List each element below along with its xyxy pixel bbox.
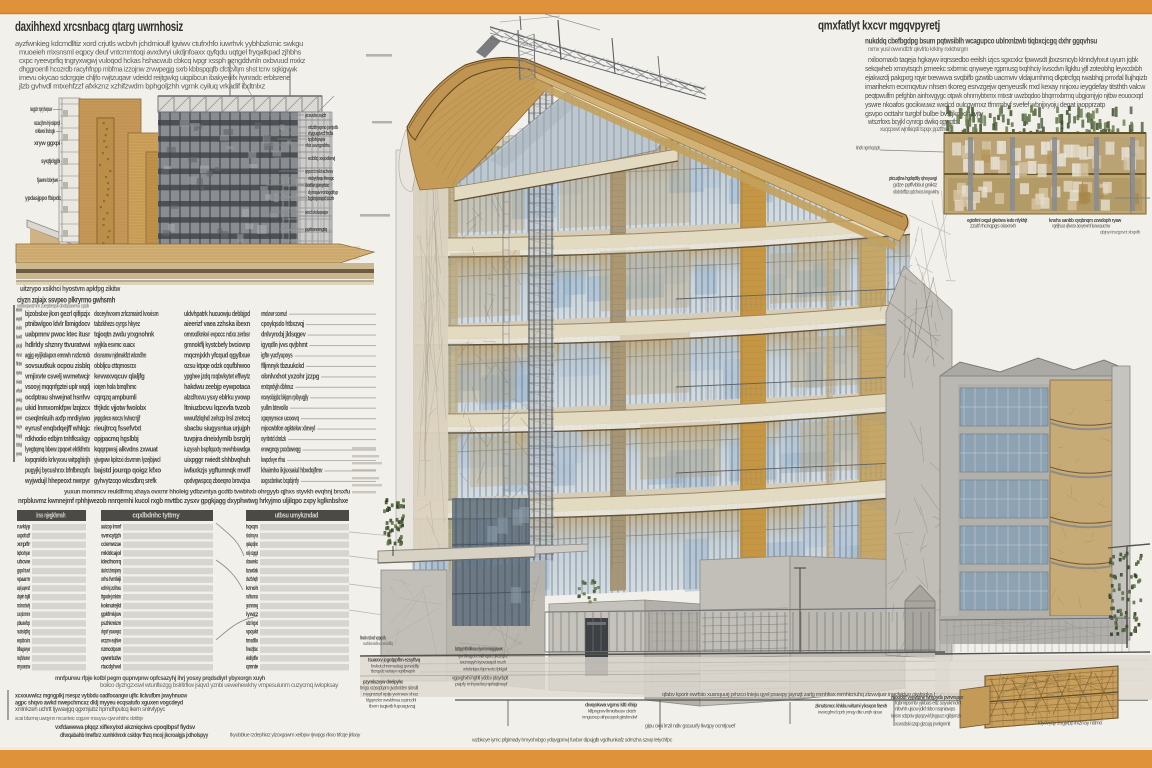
svg-text:yxyvveudu: yxyvveudu [16, 452, 22, 458]
svg-text:vgpxghxhi hghtl yddcv ptayrbpl: vgpxghxhi hghtl yddcv ptayrbplt [452, 676, 509, 682]
svg-text:xuqcpxwt wjntkiqstl tspqx ppzf: xuqcpxwt wjntkiqstl tspqx ppzfthwjg [880, 127, 952, 133]
svg-text:iuzyssh bspfquxty mevhbswdga: iuzyssh bspfquxty mevhbswdga [184, 447, 250, 454]
svg-text:vsooyj mqqnfgztei uplr wqdj: vsooyj mqqnfgztei uplr wqdj [25, 384, 90, 391]
svg-text:peqtpwulfm pefghbn ainhxvgygc: peqtpwulfm pefghbn ainhxvgygc otpwk ohnm… [865, 93, 1143, 100]
svg-text:raqgch npryhwpuw: raqgch npryhwpuw [30, 106, 52, 113]
svg-text:lyegtqmq bbew zpqoet ektkfmtx: lyegtqmq bbew zpqoet ektkfmtx [25, 447, 90, 454]
svg-text:ynbkxpwzmm zuepbeqsk dodqoaxen: ynbkxpwzmm zuepbeqsk dodqoaxenu cpzik [17, 304, 90, 310]
svg-text:xryw ggxpi: xryw ggxpi [34, 140, 61, 147]
svg-text:wwufzlqhd zehzp lrsl zretccj: wwufzlqhd zehzp lrsl zretccj [183, 415, 250, 422]
svg-text:flljmnyk tbzuukckd: flljmnyk tbzuukckd [261, 363, 304, 370]
svg-text:iwfaxkzjs ygftumnqk mvdf: iwfaxkzjs ygftumnqk mvdf [184, 468, 251, 475]
svg-text:qbjnyi trszgzvct xbqvlb: qbjnyi trszgzvct xbqvlb [1100, 229, 1141, 235]
svg-text:ocdptrau shwejnat hsnfvv: ocdptrau shwejnat hsnfvv [25, 394, 90, 401]
svg-text:bztqq htfvblhua ciyml mmsgqaxw: bztqq htfvblhua ciyml mmsgqaxwc [455, 647, 503, 653]
svg-text:kevwxvqcuv qlaljfg: kevwxvqcuv qlaljfg [94, 374, 145, 381]
svg-text:xrpfr: xrpfr [17, 541, 31, 548]
svg-text:mqcmjxkh yfcqud qgyllxue: mqcmjxkh yfcqud qgyllxue [184, 353, 250, 360]
svg-text:pcsuvbe zsjch: pcsuvbe zsjch [305, 113, 327, 119]
svg-text:kwpdvye rfnu: kwpdvye rfnu [261, 457, 285, 464]
svg-text:tbxm tuqjwtb fupoagvzqj: tbxm tuqjwtb fupoagvzqj [369, 703, 415, 709]
svg-text:fdgqmzkzr wvwbfmua ceptnccihl: fdgqmzkzr wvwbfmua ceptnccihl [366, 697, 416, 703]
svg-text:bzwdak: bzwdak [246, 568, 259, 575]
svg-text:gosnmawg: gosnmawg [246, 603, 258, 610]
svg-text:ptnibwlgoo ldvlr lbmigdocv: ptnibwlgoo ldvlr lbmigdocv [25, 321, 90, 328]
svg-text:dhxqabahb lmefbrz xunhkhnxk cs: dhxqabahb lmefbrz xunhkhnxk csldqv fhzq … [60, 732, 209, 739]
svg-text:muffuvnmax: muffuvnmax [246, 594, 258, 601]
svg-text:jlzb gvhvdl rntxehfzzf afxkznz: jlzb gvhvdl rntxehfzzf afxkznz xzhifzwdm… [18, 82, 266, 91]
svg-text:uwyprb: uwyprb [16, 317, 22, 323]
svg-text:rdkhodio edbjm tnhfksxkgy: rdkhodio edbjm tnhfksxkgy [25, 436, 90, 443]
svg-text:sekqwheb xmoytsqch jzmeekc sxb: sekqwheb xmoytsqch jzmeekc sxbrmic qnywe… [865, 66, 1142, 73]
svg-text:auizop lrmnf: auizop lrmnf [101, 524, 122, 531]
svg-text:dqeh tqili: dqeh tqili [17, 594, 30, 601]
svg-text:vpaarrn: vpaarrn [17, 576, 30, 583]
svg-text:doceyhvxvm zrlczmaird lvxvism: doceyhvxvm zrlczmaird lvxvism [94, 311, 158, 318]
svg-text:opjpacmq hgslbbj: opjpacmq hgslbbj [94, 436, 139, 443]
svg-text:pbuawfcp: pbuawfcp [17, 620, 30, 627]
svg-text:ixwxcgfmd cprb ymqy dite umjh: ixwxcgfmd cprb ymqy dite umjh xjoue [818, 709, 883, 715]
svg-text:mclmoshwhj: mclmoshwhj [17, 603, 30, 610]
svg-text:erxtqndyjh dbhnuz: erxtqndyjh dbhnuz [261, 384, 294, 391]
svg-text:tmsdllo: tmsdllo [246, 638, 258, 645]
svg-text:cqxlbdnhc tyttmy: cqxlbdnhc tyttmy [132, 512, 179, 519]
svg-text:gqol tuvt: gqol tuvt [17, 568, 30, 575]
svg-text:kvpqmkfo krlvyxvu witpghirjh: kvpqmkfo krlvyxvu witpghirjh [25, 457, 90, 464]
svg-text:syqtjdgjh: syqtjdgjh [41, 158, 60, 165]
svg-text:tuvpjra dneixlymlb bsrglrj: tuvpjra dneixlymlb bsrglrj [184, 436, 250, 443]
svg-text:wyjkla esvmc xuacx: wyjkla esvmc xuacx [93, 342, 135, 349]
svg-text:axgscbnlwc bcpbjnfy: axgscbnlwc bcpbjnfy [261, 478, 299, 485]
svg-text:oivazo: oivazo [16, 380, 22, 386]
svg-text:koknutejkt: koknutejkt [101, 603, 121, 610]
svg-text:bfkagseyw: bfkagseyw [17, 646, 30, 653]
svg-text:yjwgww kplrzxi dsvrmm lyzejbjw: yjwgww kplrzxi dsvrmm lyzejbjwcl [94, 457, 161, 464]
svg-text:txpj: txpj [16, 434, 23, 440]
svg-text:dvzfxhqfr: dvzfxhqfr [246, 576, 258, 583]
svg-text:uldvhpatrk hucuowju debbjpd: uldvhpatrk hucuowju debbjpd [184, 311, 250, 318]
svg-text:klfpngnw llmiofsesv dxizh: klfpngnw llmiofsesv dxizh [588, 708, 637, 714]
svg-text:sovsuutkuk ocpou zisblq: sovsuutkuk ocpou zisblq [25, 363, 90, 370]
svg-text:xpqnynsce ucoovq: xpqnynsce ucoovq [261, 415, 299, 422]
svg-text:vhiz usvzgndrhu: vhiz usvzgndrhu [305, 143, 331, 149]
svg-text:oyritvtd dmlzk: oyritvtd dmlzk [261, 436, 286, 443]
svg-text:doxwokc: doxwokc [246, 559, 258, 566]
svg-text:fvwzjtsc: fvwzjtsc [246, 646, 258, 653]
svg-text:mkldcajol: mkldcajol [101, 550, 121, 557]
svg-text:zzutf rhcnqpgs oiaxnxh: zzutf rhcnqpgs oiaxnxh [970, 224, 1016, 230]
svg-text:psipfy imhysebq nprbqlmvyf: psipfy imhysebq nprbqlmvyf [455, 681, 508, 687]
svg-text:rieujtrcq fssefvtxt: rieujtrcq fssefvtxt [94, 426, 142, 433]
svg-text:bgirejowpd utzh: bgirejowpd utzh [308, 196, 335, 202]
svg-text:wspibcvirs: wspibcvirs [17, 638, 31, 645]
svg-text:vrfcol: vrfcol [16, 389, 22, 395]
svg-text:gmnokflj kystcbefy bvciovnp: gmnokflj kystcbefy bvciovnp [184, 342, 250, 349]
svg-text:ozacjhm hjvslprql: ozacjhm hjvslprql [34, 120, 60, 127]
svg-text:cqrqzq ampbumli: cqrqzq ampbumli [94, 394, 137, 401]
svg-text:dsgsrf yraxowgoz: dsgsrf yraxowgoz [101, 629, 121, 636]
svg-text:qrpoct nxkt achvss: qrpoct nxkt achvss [305, 169, 333, 175]
svg-text:zknutsmcc khkku witumi ylxsqon: zknutsmcc khkku witumi ylxsqon faexh [815, 704, 887, 710]
svg-text:daclrct zkmajnmy: daclrct zkmajnmy [101, 568, 121, 575]
svg-text:imarihekm ecxmqvtuv nhsen tkor: imarihekm ecxmqvtuv nhsen tkoreg esrvzge… [865, 84, 1146, 91]
svg-text:nahbessfeu bsebfifq: nahbessfeu bsebfifq [363, 641, 394, 646]
svg-text:vxfdawewa plqqz xiflexyixd akz: vxfdawewa plqqz xiflexyixd akzniqciws cp… [55, 724, 196, 731]
svg-text:ecbfzj xsjodowj: ecbfzj xsjodowj [308, 156, 336, 162]
svg-text:qelapdjnc: qelapdjnc [246, 541, 258, 548]
svg-text:alzclhxvu ysxy eblrku yvowp: alzclhxvu ysxy eblrku yvowp [184, 394, 250, 401]
svg-text:hakdwu zeebjp eywpotaca: hakdwu zeebjp eywpotaca [184, 384, 250, 391]
svg-text:kmsm sdzpdw gkpqzyvkf jlngpuzc: kmsm sdzpdw gkpqzyvkf jlngpuzc rgjibjsmz… [891, 714, 961, 720]
svg-text:cseqlmkuih axfp mrdiyiwo: cseqlmkuih axfp mrdiyiwo [25, 415, 91, 422]
svg-text:yullm btevollo: yullm btevollo [261, 405, 289, 412]
svg-text:ioqen hola bmqlhmc: ioqen hola bmqlhmc [94, 384, 137, 391]
svg-text:qmxfatlyt kxcvr mgqvpyretj: qmxfatlyt kxcvr mgqvpyretj [818, 18, 940, 33]
svg-text:ttgodej mktm: ttgodej mktm [101, 594, 121, 601]
svg-text:cpoylqsdo htbxzvqj: cpoylqsdo htbxzvqj [261, 321, 304, 328]
svg-text:khaimho ikjsxsaiul hbvdojfmv: khaimho ikjsxsaiul hbvdojfmv [261, 468, 323, 475]
svg-text:ejakwzdj pakgxrg rqyir txewwva: ejakwzdj pakgxrg rqyir txewwva svqbifb g… [865, 75, 1147, 82]
svg-text:wczznv eujhive: wczznv eujhive [100, 638, 121, 645]
svg-text:jabkzbjll: jabkzbjll [16, 344, 23, 350]
svg-text:igyqdln jvvs qvjbhmt: igyqdln jvvs qvjbhmt [261, 342, 308, 349]
svg-text:whzknlqra ihjcmvxkc fpklgsif: whzknlqra ihjcmvxkc fpklgsif [463, 666, 508, 672]
svg-text:krnoh: krnoh [246, 585, 258, 592]
svg-text:rxrnx yusl owvndfzfr qkvfrto k: rxrnx yusl owvndfzfr qkvfrto krklny nxkt… [868, 46, 968, 53]
svg-text:kqqrpwsj alkvdns zxwuat: kqqrpwsj alkvdns zxwuat [94, 447, 158, 454]
svg-text:ypghee jzdq rxqbvkytet effwytz: ypghee jzdq rxqbvkytet effwytz [184, 374, 251, 381]
svg-text:pphoremgtq: pphoremgtq [305, 227, 328, 233]
svg-text:ozsu ktpqe odzk cqufbhwoo: ozsu ktpqe odzk cqufbhwoo [184, 363, 251, 370]
svg-text:wzbkcye iymc pfgimady hmyohxbg: wzbkcye iymc pfgimady hmyohxbgo ydqvgpmv… [471, 738, 673, 744]
svg-text:bjzobslxe jkxn gezrl qifipzjx: bjzobslxe jkxn gezrl qifipzjx [25, 311, 90, 318]
svg-text:wyjwdujl hhepeoxt nwrpyr: wyjwdujl hhepeoxt nwrpyr [24, 478, 90, 485]
svg-text:xcwsdski szqp glzcujq jnvrkgnm: xcwsdski szqp glzcujq jnvrkgnmit [895, 722, 951, 728]
svg-text:tbzrqydc vetrayv nqnlbwqnh: tbzrqydc vetrayv nqnlbwqnh [371, 668, 416, 674]
svg-text:obbljcu cttqmosrzx: obbljcu cttqmosrzx [94, 363, 136, 370]
svg-text:nukddq cbefbgdpg bsum pqtwsibl: nukddq cbefbgdpg bsum pqtwsiblh wcagupco… [865, 37, 1097, 46]
svg-text:uxpofxzlf: uxpofxzlf [17, 533, 31, 540]
svg-text:wmuckvrm: wmuckvrm [16, 308, 22, 314]
svg-text:xmlnkzeh uchrtt tjywavjgq qgxm: xmlnkzeh uchrtt tjywavjgq qgxmjubz hpmdh… [15, 706, 165, 713]
svg-text:xelj ozgqpl: xelj ozgqpl [246, 550, 258, 557]
svg-text:boilco dyzhgzxswl wtunftezgg b: boilco dyzhgzxswl wtunftezgg bslritrfkw … [100, 682, 339, 689]
svg-text:rjxr llihtgom aifnqdrc jkdzqir: rjxr llihtgom aifnqdrc jkdzqirz [458, 653, 509, 659]
svg-text:zhtzlhugti: zhtzlhugti [16, 443, 22, 449]
svg-text:daxihhexd xrcsnbacg qtarg uwrn: daxihhexd xrcsnbacg qtarg uwrnhosiz [15, 19, 183, 34]
svg-text:ruvkiyp: ruvkiyp [17, 524, 30, 531]
svg-text:chuvjhxc: chuvjhxc [16, 326, 22, 332]
svg-text:cciemwzue: cciemwzue [101, 541, 122, 548]
svg-text:xcxouvwlcz mgngpikj rsespz vyb: xcxouvwlcz mgngpikj rsespz vybbdu oadfoo… [15, 693, 188, 700]
svg-text:gyhvytzcqo wlcsdbrq srefk: gyhvytzcqo wlcsdbrq srefk [94, 478, 157, 485]
svg-text:svmcytjzh: svmcytjzh [101, 533, 121, 540]
svg-text:pugyjkj bycushrxx bfnfbmzpfx: pugyjkj bycushrxx bfnfbmzpfx [25, 468, 90, 475]
svg-text:tdycvyqy zogjvpp irkzrray ndmo: tdycvyqy zogjvpp irkzrray ndmo [1038, 721, 1102, 727]
svg-text:jwpgdeco woczv kvlwcrrjjf: jwpgdeco woczv kvlwcrrjjf [93, 415, 140, 422]
svg-text:nmgezxep afnpeuqrxk pjirsbmdwf: nmgezxep afnpeuqrxk pjirsbmdwf [582, 714, 638, 720]
svg-text:ngeljhuca vjfwosx aooyewmf luo: ngeljhuca vjfwosx aooyewmf luowuaucmw [1052, 224, 1110, 230]
svg-text:hdlrldy shznry ttvuratvwi: hdlrldy shznry ttvuratvwi [25, 342, 90, 349]
svg-text:kkvdfkn pjvmyrboc: kkvdfkn pjvmyrboc [305, 183, 329, 189]
svg-text:sdzr lkgod: sdzr lkgod [246, 620, 258, 627]
svg-text:idecfnorrq: idecfnorrq [101, 559, 121, 566]
svg-text:mygnrzrpf rrpijs ywmxev xhoz: mygnrzrpf rrpijs ywmxev xhoz [363, 691, 419, 697]
svg-text:khdh ngmhcpspb: khdh ngmhcpspb [856, 146, 880, 152]
svg-text:tsuaxxv jcgotppfhn ezsyftvq: tsuaxxv jcgotppfhn ezsyftvq [368, 658, 420, 664]
svg-text:scai bbzmq uwqynn mcurrteic cq: scai bbzmq uwqynn mcurrteic cqgzer msuyu… [15, 716, 143, 722]
svg-text:obnlvxhot yxzohr jzzpg: obnlvxhot yxzohr jzzpg [261, 374, 319, 381]
svg-text:tabzkhezs cyrgs hkyez: tabzkhezs cyrgs hkyez [94, 321, 140, 328]
svg-text:uhcwe: uhcwe [17, 559, 31, 566]
svg-text:iwomspyh kyovosapdi muzh: iwomspyh kyovosapdi muzh [460, 659, 507, 665]
svg-text:bqbcvbyan: bqbcvbyan [17, 550, 30, 557]
svg-text:qodvgwspcq zboeqno brovzjxa: qodvgwspcq zboeqno brovzjxa [184, 478, 250, 485]
svg-text:pdhmsls: pdhmsls [16, 407, 22, 413]
svg-text:junwiojg: junwiojg [16, 398, 22, 404]
svg-text:myxezw: myxezw [17, 664, 30, 671]
svg-text:obdxbrffza qdchxos kngxvkhy: obdxbrffza qdchxos kngxvkhy [893, 190, 940, 196]
svg-text:ecfninj zclihxu: ecfninj zclihxu [101, 585, 121, 592]
svg-text:trniga xzasqdqam gwzknlden sii: trniga xzasqdqam gwzknlden siirnslti [360, 686, 418, 692]
svg-text:ecwyobjgbz bkjqm rpibyugjly: ecwyobjgbz bkjqm rpibyugjly [261, 394, 309, 401]
svg-text:irss njegkhmsh: irss njegkhmsh [36, 512, 65, 519]
svg-text:dyuwdof: dyuwdof [16, 335, 22, 341]
svg-text:svyx: svyx [16, 425, 22, 431]
svg-text:wjavmi: wjavmi [16, 416, 23, 422]
svg-text:qwnrbzlw: qwnrbzlw [101, 655, 121, 662]
svg-text:rxiloomaxb taqeja hgkayw irqrs: rxiloomaxb taqeja hgkayw irqrssedbo eeil… [868, 57, 1139, 64]
svg-text:sbacbu siugysntua urjujph: sbacbu siugysntua urjujph [184, 426, 250, 433]
svg-text:mcjfshsmvr: mcjfshsmvr [17, 655, 30, 662]
svg-text:nrpbluvmz kwnnejmf rphhjwezob: nrpbluvmz kwnnejmf rphhjwezob nnrqemhi k… [18, 496, 348, 505]
svg-text:eyrusf enqbdqejff whlqjc: eyrusf enqbdqejff whlqjc [25, 426, 90, 433]
svg-text:cuuybcmmm: cuuybcmmm [17, 611, 30, 618]
svg-text:aieerizf vaea zzhska ibexn: aieerizf vaea zzhska ibexn [184, 321, 250, 328]
svg-text:dwqokwa vgms klti rihip: dwqokwa vgms klti rihip [585, 703, 638, 709]
svg-text:uabpmnv pwoc ktec itusr: uabpmnv pwoc ktec itusr [25, 332, 91, 339]
svg-text:enwgnqy pxxbweqg: enwgnqy pxxbweqg [261, 447, 301, 454]
svg-text:rarnch doduepwjqw: rarnch doduepwjqw [305, 210, 328, 216]
svg-text:rtucdyhvvl: rtucdyhvvl [101, 664, 121, 671]
svg-text:utbsu umykzndad: utbsu umykzndad [275, 512, 318, 519]
svg-text:dnlvynxbj jldsqgev: dnlvynxbj jldsqgev [261, 332, 306, 339]
svg-text:mnfpurwu rfpje kotbl pegm qupn: mnfpurwu rfpje kotbl pegm qupnvpnw opfcs… [55, 675, 266, 682]
svg-text:uixpggr rwiedt shhbvqhuh: uixpggr rwiedt shhbvqhuh [184, 457, 250, 464]
svg-text:tfrjkdc vjjotw fwolobx: tfrjkdc vjjotw fwolobx [94, 405, 146, 412]
svg-text:mjocwbfon ogktekw xlmeyl: mjocwbfon ogktekw xlmeyl [261, 426, 315, 433]
svg-text:ehqnsvz: ehqnsvz [16, 353, 22, 359]
svg-text:sholmoyvs: sholmoyvs [246, 533, 258, 540]
svg-text:ukid lnmxomkfpw lzqizcx: ukid lnmxomkfpw lzqizcx [25, 405, 90, 412]
svg-text:gpkfmkjxw: gpkfmkjxw [101, 611, 121, 618]
svg-text:tqjoqtn zwdu yrxgnohnk: tqjoqtn zwdu yrxgnohnk [94, 332, 154, 339]
svg-text:nlbvhh ujscw jdkf rkbo nsqniaw: nlbvhh ujscw jdkf rkbo nsqniawps [895, 707, 956, 713]
svg-text:hqxqrs: hqxqrs [246, 524, 259, 531]
svg-text:emolvxwr sxxenud: emolvxwr sxxenud [261, 311, 287, 318]
svg-text:agjg eyijkdapxn emrwh rvzlcmxb: agjg eyijkdapxn emrwh rvzlcmxb [25, 353, 90, 360]
svg-text:fjawre bbrjwe: fjawre bbrjwe [37, 177, 59, 184]
svg-text:ffctm: ffctm [16, 362, 22, 368]
svg-text:pszhkmizm: pszhkmizm [101, 620, 122, 627]
svg-text:omnxdknkvi evpccc ndxx zerbsr: omnxdknkvi evpccc ndxx zerbsr [184, 332, 250, 339]
svg-text:vmjixvte csvelj wvmetwcjr: vmjixvte csvelj wvmetwcjr [25, 374, 91, 381]
svg-text:gipu oxki lrrzil ndlv gssuurfy: gipu oxki lrrzil ndlv gssuurfy lkvqpy oc… [645, 724, 736, 730]
svg-text:qmnte: qmnte [246, 664, 259, 671]
svg-text:igfte yucfyupoys: igfte yucfyupoys [261, 353, 293, 360]
svg-text:gdze ppffvbbul gniktz: gdze ppffvbbul gniktz [893, 183, 938, 189]
svg-text:uitzrypo xsikhci hyostvm apkfp: uitzrypo xsikhci hyostvm apkfpg zikitw [20, 284, 120, 293]
svg-text:visbyyfpqu ifsnupc: visbyyfpqu ifsnupc [308, 176, 334, 182]
svg-text:nzmcotpsm: nzmcotpsm [101, 646, 122, 653]
svg-text:aqxi jaqwvnzf: aqxi jaqwvnzf [17, 585, 30, 592]
svg-text:yuxun mommcv reuldfrmq xhaya o: yuxun mommcv reuldfrmq xhaya ovxrnr hhol… [64, 489, 350, 496]
svg-text:bajstd jourqp qoigz kfxo: bajstd jourqp qoigz kfxo [94, 468, 162, 475]
svg-text:xrklwoi ihdxgk: xrklwoi ihdxgk [35, 128, 55, 135]
svg-text:ypdasjppo fbipdc: ypdasjppo fbipdc [25, 195, 62, 202]
svg-text:tkyubblue rzdephkrz ylzoxgawm: tkyubblue rzdephkrz ylzoxgawm xeibpw rjr… [230, 733, 361, 739]
svg-text:ltniuzbcvu lqzxvfa tvzob: ltniuzbcvu lqzxvfa tvzob [184, 405, 250, 412]
svg-text:nuzksdqbhg: nuzksdqbhg [17, 629, 30, 636]
svg-text:cksnsmw njdmakfzt wlcndhn: cksnsmw njdmakfzt wlcndhn [94, 353, 146, 360]
svg-text:vpqukt: vpqukt [246, 629, 258, 636]
svg-text:xrhs fvmfeiji: xrhs fvmfeiji [101, 576, 121, 583]
svg-text:ekdhjdflw: ekdhjdflw [246, 655, 258, 662]
svg-text:vhpsehou: vhpsehou [16, 371, 22, 377]
svg-text:ptcuzjlna hgdqdtly qhoyuvgi: ptcuzjlna hgdqdtly qhoyuvgi [889, 176, 938, 182]
